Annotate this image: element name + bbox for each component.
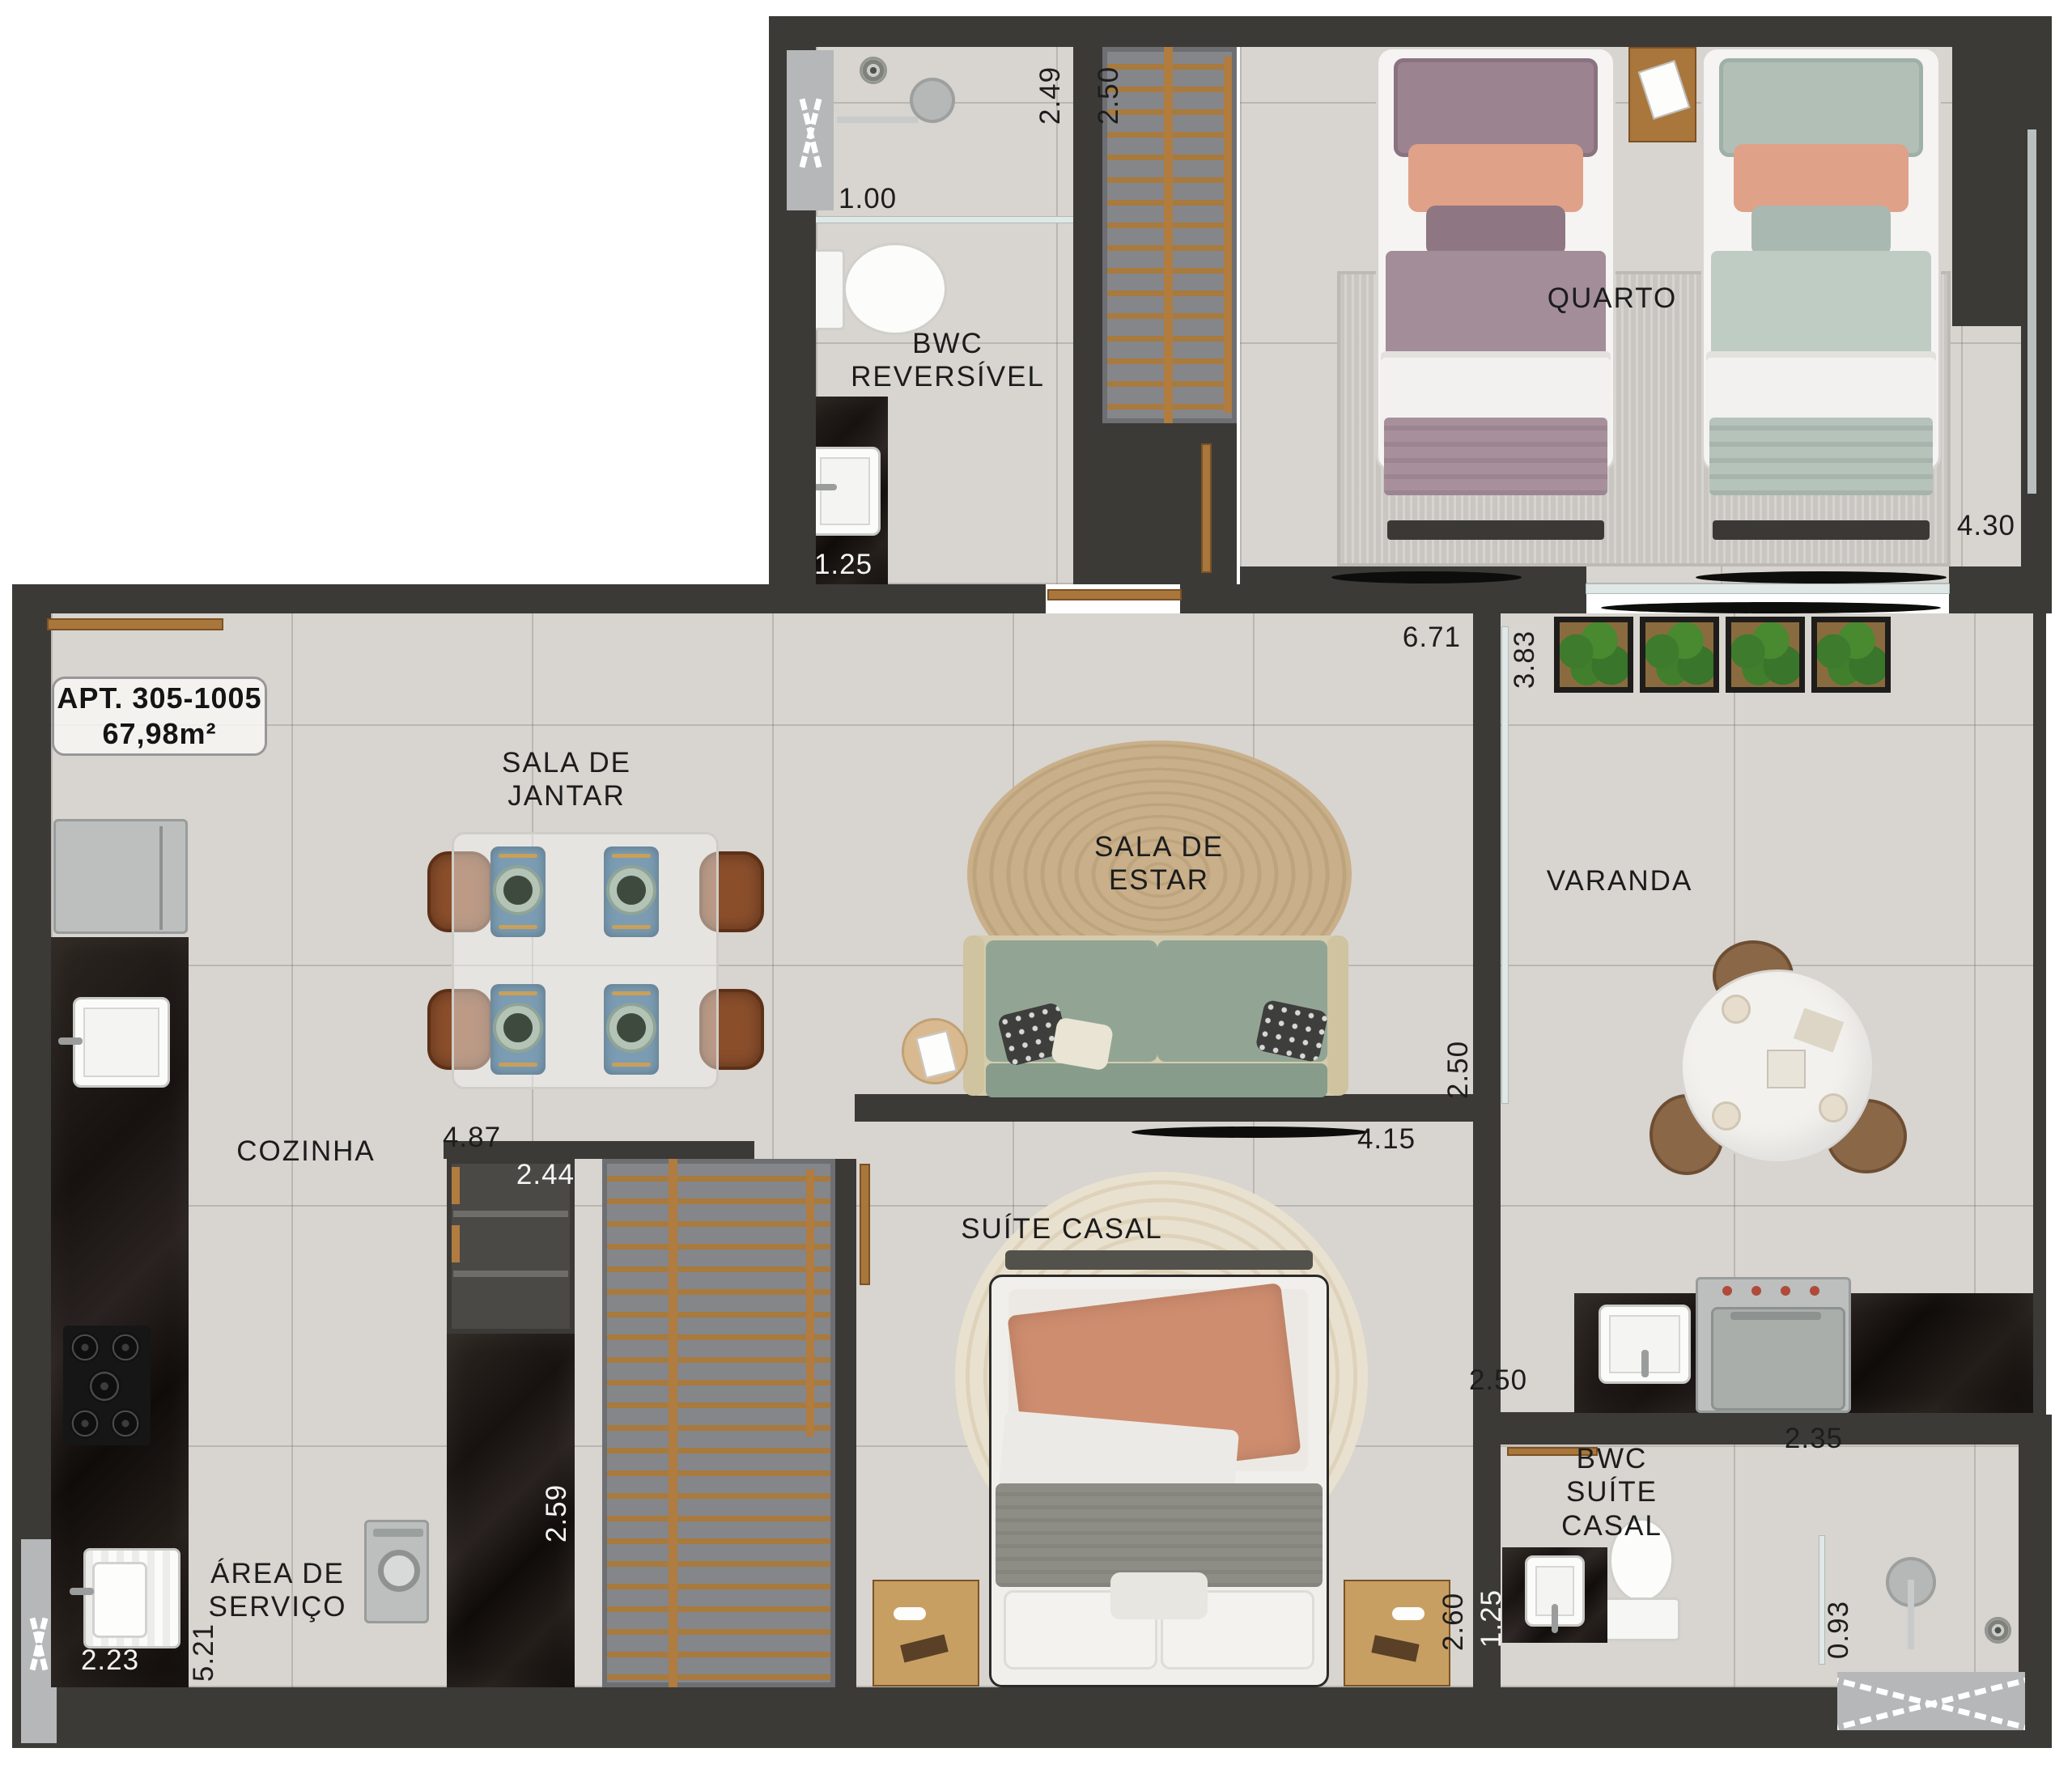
pillow-icon [1734,144,1909,212]
grill-icon [1696,1277,1851,1413]
pillow-icon [1110,1572,1208,1619]
pillow-icon [1051,1016,1115,1071]
wardrobe-rail [1224,57,1232,413]
dim-varanda-width: 3.83 [1509,615,1541,704]
placemat [490,846,546,937]
planter-icon [1726,617,1805,693]
label-bwc-reversivel: BWCREVERSÍVEL [830,327,1065,394]
dim-bwc-width: 2.49 [1034,51,1067,140]
label-bwc-suite: BWCSUÍTECASAL [1525,1442,1699,1542]
faucet-icon [58,1037,83,1045]
wall [1949,566,2052,613]
dim-jantar-length: 4.87 [419,1122,524,1154]
entry-door-icon [47,618,223,630]
balcony-rail [2033,613,2046,1416]
quarto-dark-wardrobe [1952,47,2021,326]
placemat [490,984,546,1075]
sink-icon [809,447,881,536]
wall [769,16,2052,47]
dim-cabinet-width: 2.44 [510,1159,575,1191]
wall [835,1159,856,1687]
faucet-icon [1552,1604,1558,1633]
cooktop-icon [63,1326,151,1445]
wardrobe-rail [669,1159,677,1687]
nightstand-icon [1628,47,1696,142]
toilet-icon [843,243,947,335]
dim-sala-width: 2.50 [1442,1025,1475,1114]
wall [12,1687,2052,1748]
sofa-icon [963,931,1348,1101]
pillow-icon [1719,58,1923,157]
nightstand-icon [873,1580,979,1687]
shower-arm [1908,1580,1914,1649]
dim-bwc-suite-width: 2.35 [1730,1423,1843,1455]
wall [1073,423,1237,584]
glass-partition [816,217,1073,223]
wardrobe-rail [806,1169,814,1436]
curtain-icon [1331,571,1522,583]
dim-quarto-width: 4.30 [1902,510,2015,542]
apartment-area: 67,98m² [54,716,265,752]
wall [1180,584,1242,613]
double-bed [989,1250,1329,1687]
planter-icon [1811,617,1891,693]
wardrobe-rail [1164,47,1173,423]
window-hatch-icon [1837,1672,2025,1730]
shower-arm [837,117,918,123]
door-leaf [1201,443,1212,573]
floor-drain-icon [860,57,887,84]
tv-icon [1132,1126,1368,1138]
wardrobe-rack-icon [602,1159,835,1687]
placemat [604,846,659,937]
dim-bwc-vanity: 1.25 [803,549,884,581]
round-table-icon [1680,969,1875,1164]
label-suite-casal: SUÍTE CASAL [932,1212,1191,1245]
dim-sala-length: 6.71 [1319,622,1461,654]
floor-plan: APT. 305-1005 67,98m² BWCREVERSÍVEL QUAR… [0,0,2072,1782]
fridge-icon [53,819,188,934]
dim-shower-width: 1.00 [839,183,919,215]
wall [2021,16,2052,613]
door-leaf [860,1164,870,1285]
dim-servico-length: 5.21 [188,1608,220,1697]
wall [12,584,771,613]
pillow-icon [1408,144,1583,212]
pillow-icon [1751,206,1891,256]
apartment-badge: APT. 305-1005 67,98m² [52,677,267,756]
window-strip [2027,129,2036,494]
dim-varanda-counter: 2.50 [1458,1364,1539,1397]
toilet-icon [1603,1597,1680,1641]
nightstand-icon [1344,1580,1450,1687]
pillow-icon [1394,58,1598,157]
toilet-icon [811,249,845,330]
label-sala-jantar: SALA DEJANTAR [469,746,664,813]
label-cozinha: COZINHA [209,1135,403,1168]
pillow-icon [1426,206,1565,256]
sliding-door-icon [1586,584,1949,593]
door-leaf [1047,589,1182,600]
planter-icon [1640,617,1719,693]
label-sala-estar: SALA DEESTAR [1062,830,1256,897]
wall [769,584,1046,613]
label-varanda: VARANDA [1526,864,1713,897]
faucet-icon [70,1588,94,1595]
label-quarto: QUARTO [1499,282,1726,315]
floor-drain-icon [1985,1617,2011,1644]
shower-head-icon [910,78,955,123]
faucet-icon [1641,1350,1649,1377]
single-bed-sage [1701,47,1941,542]
dim-suite-shower: 0.93 [1823,1585,1855,1674]
dim-closet-width: 2.50 [1093,51,1125,140]
dim-suite-width: 2.60 [1437,1577,1470,1666]
curtain-icon [1696,571,1947,583]
wall [1473,613,1501,1687]
dim-tanque-width: 2.23 [70,1644,151,1677]
sink-icon [73,997,170,1088]
placemat [604,984,659,1075]
planter-icon [1554,617,1633,693]
dim-suite-vanity: 1.25 [1475,1574,1508,1663]
side-table-icon [902,1018,968,1084]
sliding-door-icon [1502,627,1508,1103]
dim-cabinet-depth: 2.59 [541,1469,573,1558]
window-hatch-icon [787,50,834,210]
dim-sala-depth: 4.15 [1334,1123,1439,1156]
curtain-icon [1601,602,1941,613]
apartment-number: APT. 305-1005 [54,681,265,716]
